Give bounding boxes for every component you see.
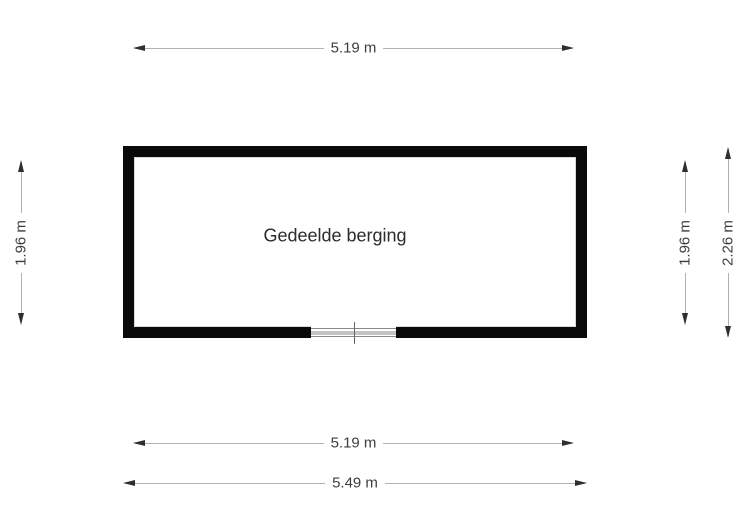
arrow-down-icon [18, 313, 24, 325]
dimension-label: 2.26 m [720, 213, 737, 273]
dimension-label: 5.19 m [324, 40, 384, 57]
arrow-down-icon [682, 313, 688, 325]
arrow-down-icon [725, 326, 731, 338]
dimension-bottom-outer-width: 5.49 m [123, 476, 587, 490]
arrow-left-icon [133, 45, 145, 51]
dimension-right-outer-height: 2.26 m [721, 147, 735, 338]
dimension-bottom-inner-width: 5.19 m [133, 436, 574, 450]
dimension-top-width: 5.19 m [133, 41, 574, 55]
arrow-left-icon [133, 440, 145, 446]
arrow-right-icon [562, 440, 574, 446]
dimension-label: 1.96 m [13, 213, 30, 273]
floorplan-canvas: 5.19 m Gedeelde berging 1.96 m 1.96 m 2.… [0, 0, 750, 530]
arrow-up-icon [725, 147, 731, 159]
dimension-label: 5.49 m [325, 475, 385, 492]
room-label: Gedeelde berging [263, 226, 406, 247]
dimension-label: 1.96 m [677, 213, 694, 273]
arrow-up-icon [18, 160, 24, 172]
arrow-up-icon [682, 160, 688, 172]
arrow-left-icon [123, 480, 135, 486]
dimension-right-inner-height: 1.96 m [678, 160, 692, 325]
window-center-divider [354, 322, 355, 344]
window-symbol [311, 326, 396, 339]
dimension-left-height: 1.96 m [14, 160, 28, 325]
arrow-right-icon [562, 45, 574, 51]
arrow-right-icon [575, 480, 587, 486]
dimension-label: 5.19 m [324, 435, 384, 452]
